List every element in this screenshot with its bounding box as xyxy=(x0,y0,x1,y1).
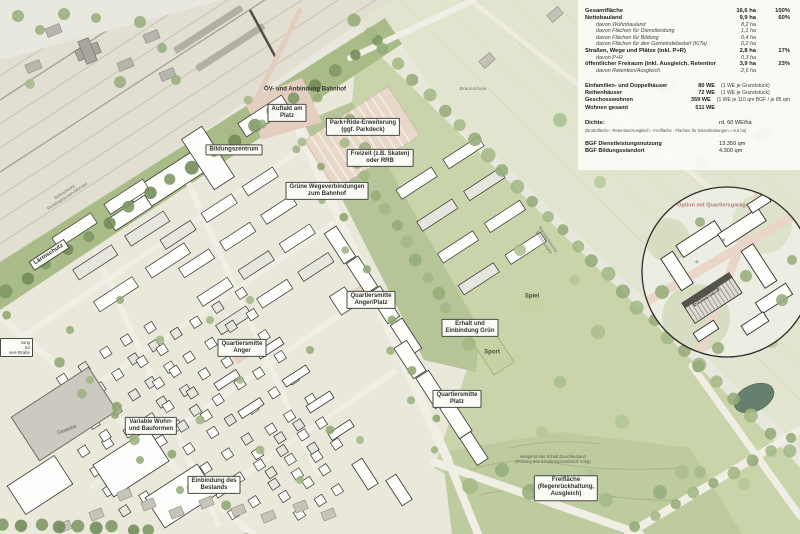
label-strasse-fragment: zung tur sen-Straße xyxy=(0,338,33,357)
area-row: öffentlicher Freiraum (inkl. Ausgleich, … xyxy=(585,61,790,68)
label-station-link: ÖV- und Anbindung Bahnhof xyxy=(264,86,346,93)
housing-row: Einfamilien- und Doppelhäuser80 WE(1 WE … xyxy=(585,83,790,90)
label-spiel: Spiel xyxy=(525,293,539,300)
bgf-row: BGF Dienstleistungsnutzung13.350 qm xyxy=(585,141,790,149)
label-braunschule: Braunschule xyxy=(460,87,487,93)
bgf-row: BGF Bildungsstandort4.300 qm xyxy=(585,148,790,156)
label-einbindung-bestand: Einbindung des Bestands xyxy=(188,476,241,494)
area-row: Nettobauland9,9 ha60% xyxy=(585,15,790,22)
label-sport: Sport xyxy=(484,349,500,356)
area-row: Gesamtfläche16,6 ha100% xyxy=(585,8,790,15)
label-auftakt-platz: Auftakt am Platz xyxy=(267,104,306,122)
label-erhalt-gruen: Erhalt und Einbindung Grün xyxy=(442,319,499,337)
label-quartiersmitte-anger: Quartiersmitte Anger xyxy=(217,339,266,357)
label-quartiersmitte-anger-platz: Quartiersmitte Anger/Platz xyxy=(346,291,395,309)
label-bildungszentrum: Bildungszentrum xyxy=(206,144,263,155)
housing-row: Wohnen gesamt511 WE xyxy=(585,105,790,112)
bgf-table: BGF Dienstleistungsnutzung13.350 qmBGF B… xyxy=(585,141,790,156)
density-label: Dichte: xyxy=(585,120,719,126)
housing-table: Einfamilien- und Doppelhäuser80 WE(1 WE … xyxy=(585,83,790,112)
label-park-ride: Park+Ride-Erweiterung (ggf. Parkdeck) xyxy=(326,118,400,136)
density-row: Dichte: rd. 60 WE/ha xyxy=(585,120,790,126)
area-row: Straßen, Wege und Plätze (inkl. P+R)2,8 … xyxy=(585,48,790,55)
statistics-panel: Gesamtfläche16,6 ha100%Nettobauland9,9 h… xyxy=(578,0,800,170)
label-freizeit: Freizeit (z.B. Skaten) oder RRB xyxy=(347,149,414,167)
housing-row: Reihenhäuser72 WE(1 WE je Grundstück) xyxy=(585,90,790,97)
area-row: davon Retention/Ausgleich2,6 ha xyxy=(585,68,790,74)
label-freiflaeche: Freifläche (Regenrückhaltung, Ausgleich) xyxy=(534,475,598,501)
masterplan-canvas: ÖV- und Anbindung Bahnhof Auftakt am Pla… xyxy=(0,0,800,534)
density-value: rd. 60 WE/ha xyxy=(719,120,752,126)
area-table: Gesamtfläche16,6 ha100%Nettobauland9,9 h… xyxy=(585,8,790,75)
label-gruene-wege: Grüne Wegeverbindungen zum Bahnhof xyxy=(286,182,369,200)
label-quartiersmitte-platz: Quartiersmitte Platz xyxy=(432,390,481,408)
label-option-quartiersgarage: Option mit Quartiersgarage xyxy=(677,203,749,210)
label-variable-wohnformen: Variable Wohn- und Bauformen xyxy=(125,417,177,435)
density-footnote: (Bruttofläche - Retention/Ausgleich - Fr… xyxy=(585,128,790,133)
housing-row: Geschosswohnen359 WE(1 WE je 110 qm BGF … xyxy=(585,97,790,104)
label-baumbestand-note: weitgehender Erhalt Baumbestand (Prüfung… xyxy=(515,454,590,464)
